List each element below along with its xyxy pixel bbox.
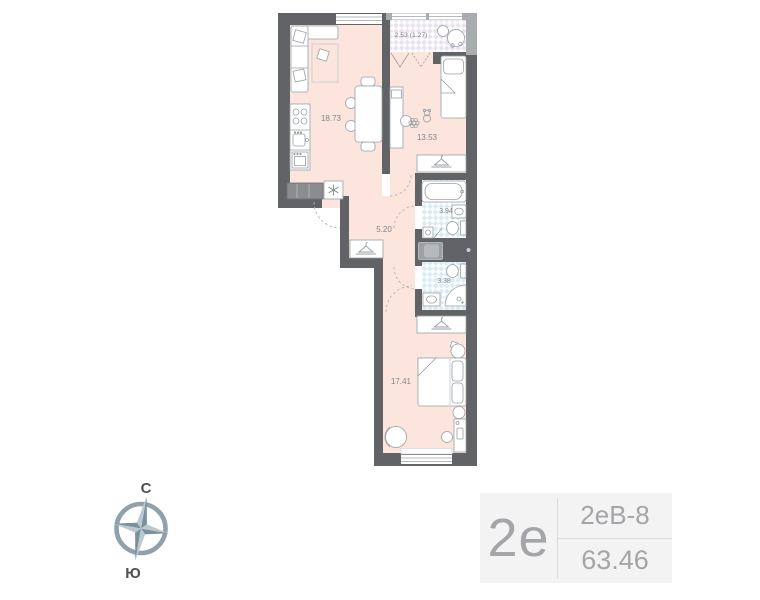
wardrobe-icon xyxy=(417,155,466,172)
room-label-kitchen-living: 18.73 xyxy=(321,114,342,123)
plan-code-label: 2еВ-8 xyxy=(558,493,672,539)
nightstand-icon xyxy=(453,407,465,419)
kitchen-cabinet-icon xyxy=(287,183,323,199)
room-label-hallway: 5.20 xyxy=(376,225,392,234)
wardrobe-icon xyxy=(417,316,466,333)
floor-plan-page: 18.73 13.53 2.53 (1.27) 3.94 5.20 3.38 1… xyxy=(0,0,760,600)
bathroom-sink-icon xyxy=(423,293,440,306)
toilet-icon xyxy=(447,221,466,235)
layout-type-label: 2е xyxy=(480,493,557,583)
oven-icon xyxy=(292,152,308,168)
door-handle-icon xyxy=(467,248,471,252)
bathroom-sink-icon xyxy=(452,205,466,218)
bathtub-icon xyxy=(422,181,466,202)
fridge-icon xyxy=(324,181,343,199)
total-area-label: 63.46 xyxy=(558,539,672,584)
bedroom-window xyxy=(401,449,452,465)
compass-north-label: С xyxy=(141,480,152,497)
armchair-icon xyxy=(385,427,407,448)
compass-south-label: Ю xyxy=(125,565,140,582)
double-bed-icon xyxy=(418,358,466,406)
room-label-child-bedroom: 13.53 xyxy=(417,133,438,142)
toilet-icon xyxy=(447,264,466,278)
room-label-shower-room: 3.38 xyxy=(437,278,451,285)
room-label-bedroom: 17.41 xyxy=(391,377,412,386)
single-bed-icon xyxy=(441,56,466,118)
room-label-bathroom: 3.94 xyxy=(439,208,453,215)
washing-machine-icon xyxy=(419,243,443,260)
compass-icon: С Ю xyxy=(108,480,173,582)
apartment-info-card: 2е 2еВ-8 63.46 xyxy=(480,493,672,583)
wardrobe-icon xyxy=(350,240,383,258)
room-label-balcony: 2.53 (1.27) xyxy=(395,32,428,39)
kitchen-window xyxy=(336,14,382,24)
